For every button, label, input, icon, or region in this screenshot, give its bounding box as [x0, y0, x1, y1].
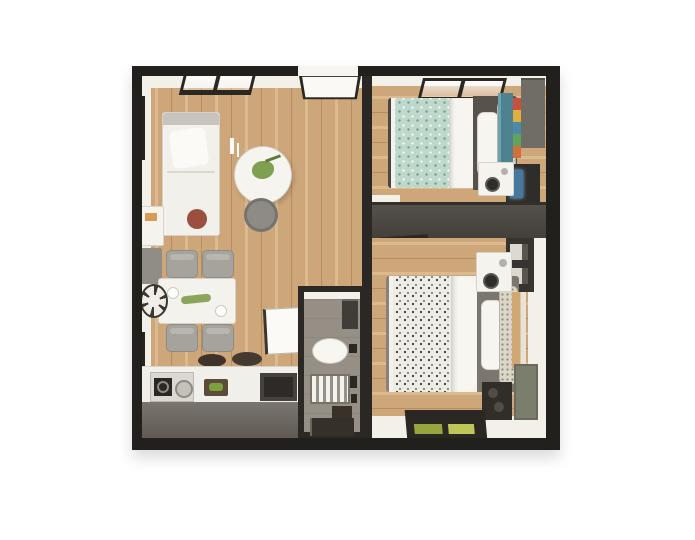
wall-left: [132, 66, 142, 450]
sofa-cushion-divider: [167, 171, 215, 173]
plant-sprig: [265, 154, 281, 162]
bedroom2-speaker: [482, 382, 512, 420]
bedroom2-nightstand: [476, 252, 512, 292]
greens: [209, 383, 223, 391]
stove-burner: [154, 378, 172, 396]
speaker-cone: [488, 388, 498, 398]
dining-table: [158, 278, 236, 324]
round-stool: [244, 198, 278, 232]
nightstand-item: [499, 259, 507, 267]
wall-clock-icon: [140, 284, 168, 318]
bathroom-wall-face: [304, 292, 360, 299]
sink-basin: [264, 377, 293, 397]
nightstand-lamp: [483, 273, 499, 289]
bedroom2-olive-cabinet: [514, 364, 538, 420]
shower-fixture: [351, 394, 357, 403]
shower-fixture: [350, 376, 357, 388]
bedroom-divider-wall: [372, 202, 546, 238]
dining-chair: [166, 324, 198, 352]
apartment-floor-plan: [132, 66, 560, 450]
table-plate: [215, 305, 227, 317]
speaker-cone: [494, 402, 504, 412]
bedroom1-shelf-items: [513, 98, 521, 158]
bathroom-window: [310, 418, 354, 436]
side-shelf: [140, 206, 164, 246]
bedroom1-teal-wardrobe: [498, 93, 513, 168]
shelf-compartment: [510, 244, 528, 260]
sofa: [162, 112, 220, 236]
sofa-cushion-brown: [187, 209, 207, 229]
bedroom1-sheet-fold: [449, 98, 473, 188]
dining-chair: [166, 250, 198, 278]
entry-door-leaf: [299, 76, 361, 99]
floor-plan-render: [0, 0, 695, 540]
bedroom1-closet: [521, 78, 545, 148]
table-plate: [167, 287, 179, 299]
nightstand-item: [501, 168, 508, 175]
bathroom-door-leaf: [263, 307, 301, 355]
sofa-throw-blanket: [169, 127, 210, 170]
bedroom2-closet-tan: [512, 292, 526, 368]
plant-icon: [252, 161, 274, 179]
orange-book: [145, 213, 157, 221]
nightstand-lamp: [485, 177, 500, 192]
bedroom1-blanket: [395, 98, 449, 188]
wall-right: [546, 66, 560, 450]
dining-chair: [202, 324, 234, 352]
candle-sticks: [230, 138, 234, 154]
bathroom: [298, 286, 366, 438]
wall-bottom: [132, 438, 560, 450]
bedroom2-sheet-fold: [451, 276, 477, 392]
bedroom2-bed: [386, 276, 519, 392]
table-plant: [181, 293, 212, 304]
wall-vertical-center: [362, 76, 372, 438]
bedroom2-window: [405, 410, 488, 440]
entry-door-gap: [295, 66, 361, 76]
pan: [232, 352, 262, 366]
bedroom1-nightstand: [478, 162, 514, 196]
dining-chair: [202, 250, 234, 278]
toilet: [312, 338, 348, 364]
cutting-board: [204, 379, 228, 396]
coffee-table: [234, 146, 292, 204]
kitchen-counter: [142, 366, 300, 403]
sofa-back-band: [163, 113, 219, 125]
bathroom-shelf: [342, 299, 358, 329]
gas-stove: [150, 372, 194, 402]
sink-appliance: [260, 373, 297, 401]
window-grass: [448, 424, 475, 434]
shower-tray: [310, 374, 350, 404]
steel-pot: [175, 380, 193, 398]
bedroom2-blanket: [393, 276, 451, 392]
counter-front: [142, 402, 300, 438]
window-grass: [414, 424, 443, 434]
toilet-paper-holder: [349, 344, 357, 353]
